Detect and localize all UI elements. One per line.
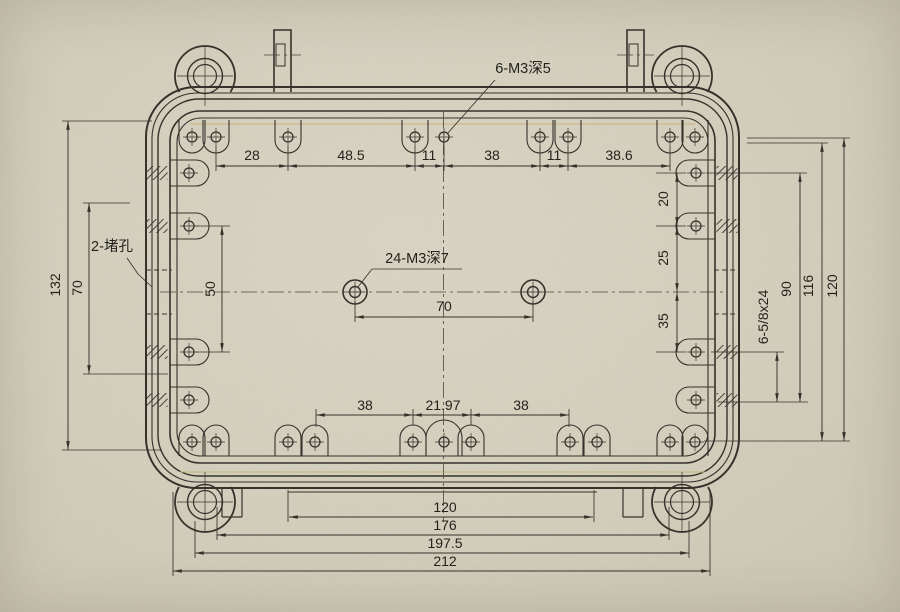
- dim-top-11b: 11: [547, 147, 562, 163]
- dim-bottom-21-97: 21.97: [425, 397, 460, 413]
- dim-top-38: 38: [484, 147, 500, 163]
- dim-left-70: 70: [69, 280, 85, 296]
- dim-top-48-5: 48.5: [337, 147, 364, 163]
- dim-top-38-6: 38.6: [605, 147, 632, 163]
- callout-center-holes: 24-M3深7: [385, 250, 449, 267]
- dim-center-70: 70: [436, 298, 452, 314]
- dim-bottom-197-5: 197.5: [427, 535, 462, 551]
- dim-right-25: 25: [655, 250, 671, 266]
- dim-left-50: 50: [202, 281, 218, 297]
- dim-left-132: 132: [47, 273, 63, 297]
- dim-bottom-120: 120: [433, 499, 457, 515]
- dim-right-20: 20: [655, 191, 671, 207]
- dim-right-35: 35: [655, 313, 671, 329]
- dim-right-116: 116: [800, 275, 816, 298]
- callout-top-holes: 6-M3深5: [495, 60, 551, 77]
- dim-bottom-38b: 38: [513, 397, 529, 413]
- dim-bottom-176: 176: [433, 517, 457, 533]
- callout-plug-holes: 2-堵孔: [91, 238, 133, 255]
- drawing-canvas: 6-M3深5 28 48.5 11 38 11 38.6 132 70 50 2…: [0, 0, 900, 612]
- dim-top-28: 28: [244, 147, 260, 163]
- dim-right-120: 120: [824, 274, 840, 298]
- callout-connector-holes: 6-5/8x24: [755, 290, 771, 345]
- dim-bottom-38a: 38: [357, 397, 373, 413]
- dim-bottom-212: 212: [433, 553, 457, 569]
- dim-right-90: 90: [778, 281, 794, 297]
- enclosure-drawing: 6-M3深5 28 48.5 11 38 11 38.6 132 70 50 2…: [0, 0, 900, 612]
- dim-top-11a: 11: [422, 147, 437, 163]
